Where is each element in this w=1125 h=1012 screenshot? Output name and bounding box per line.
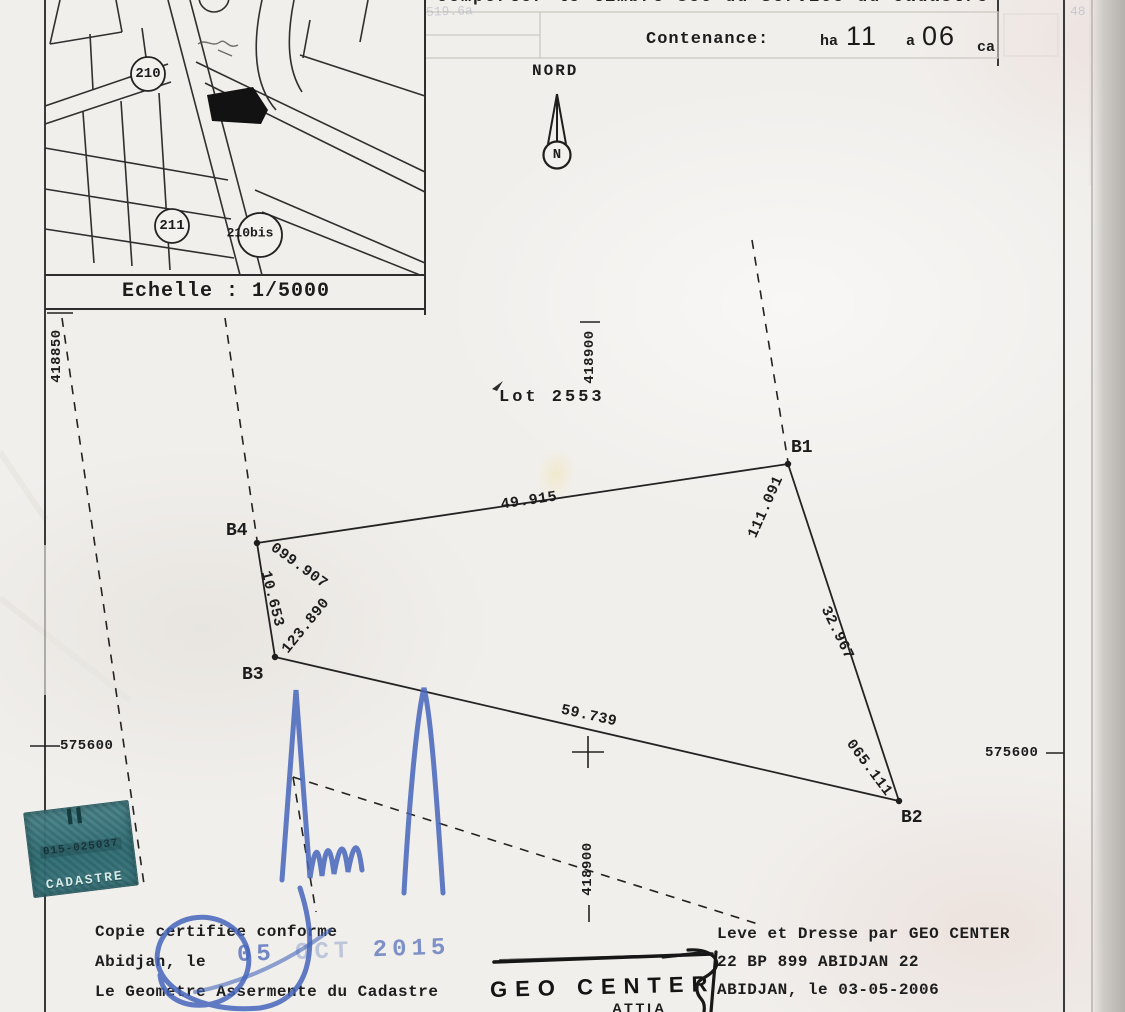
signature (157, 688, 443, 1009)
ink-overlay (0, 0, 1125, 1012)
black-ink-scribble (663, 950, 717, 1012)
cadastral-plan-document: comporter le timbre sec du Service du Ca… (0, 0, 1125, 1012)
